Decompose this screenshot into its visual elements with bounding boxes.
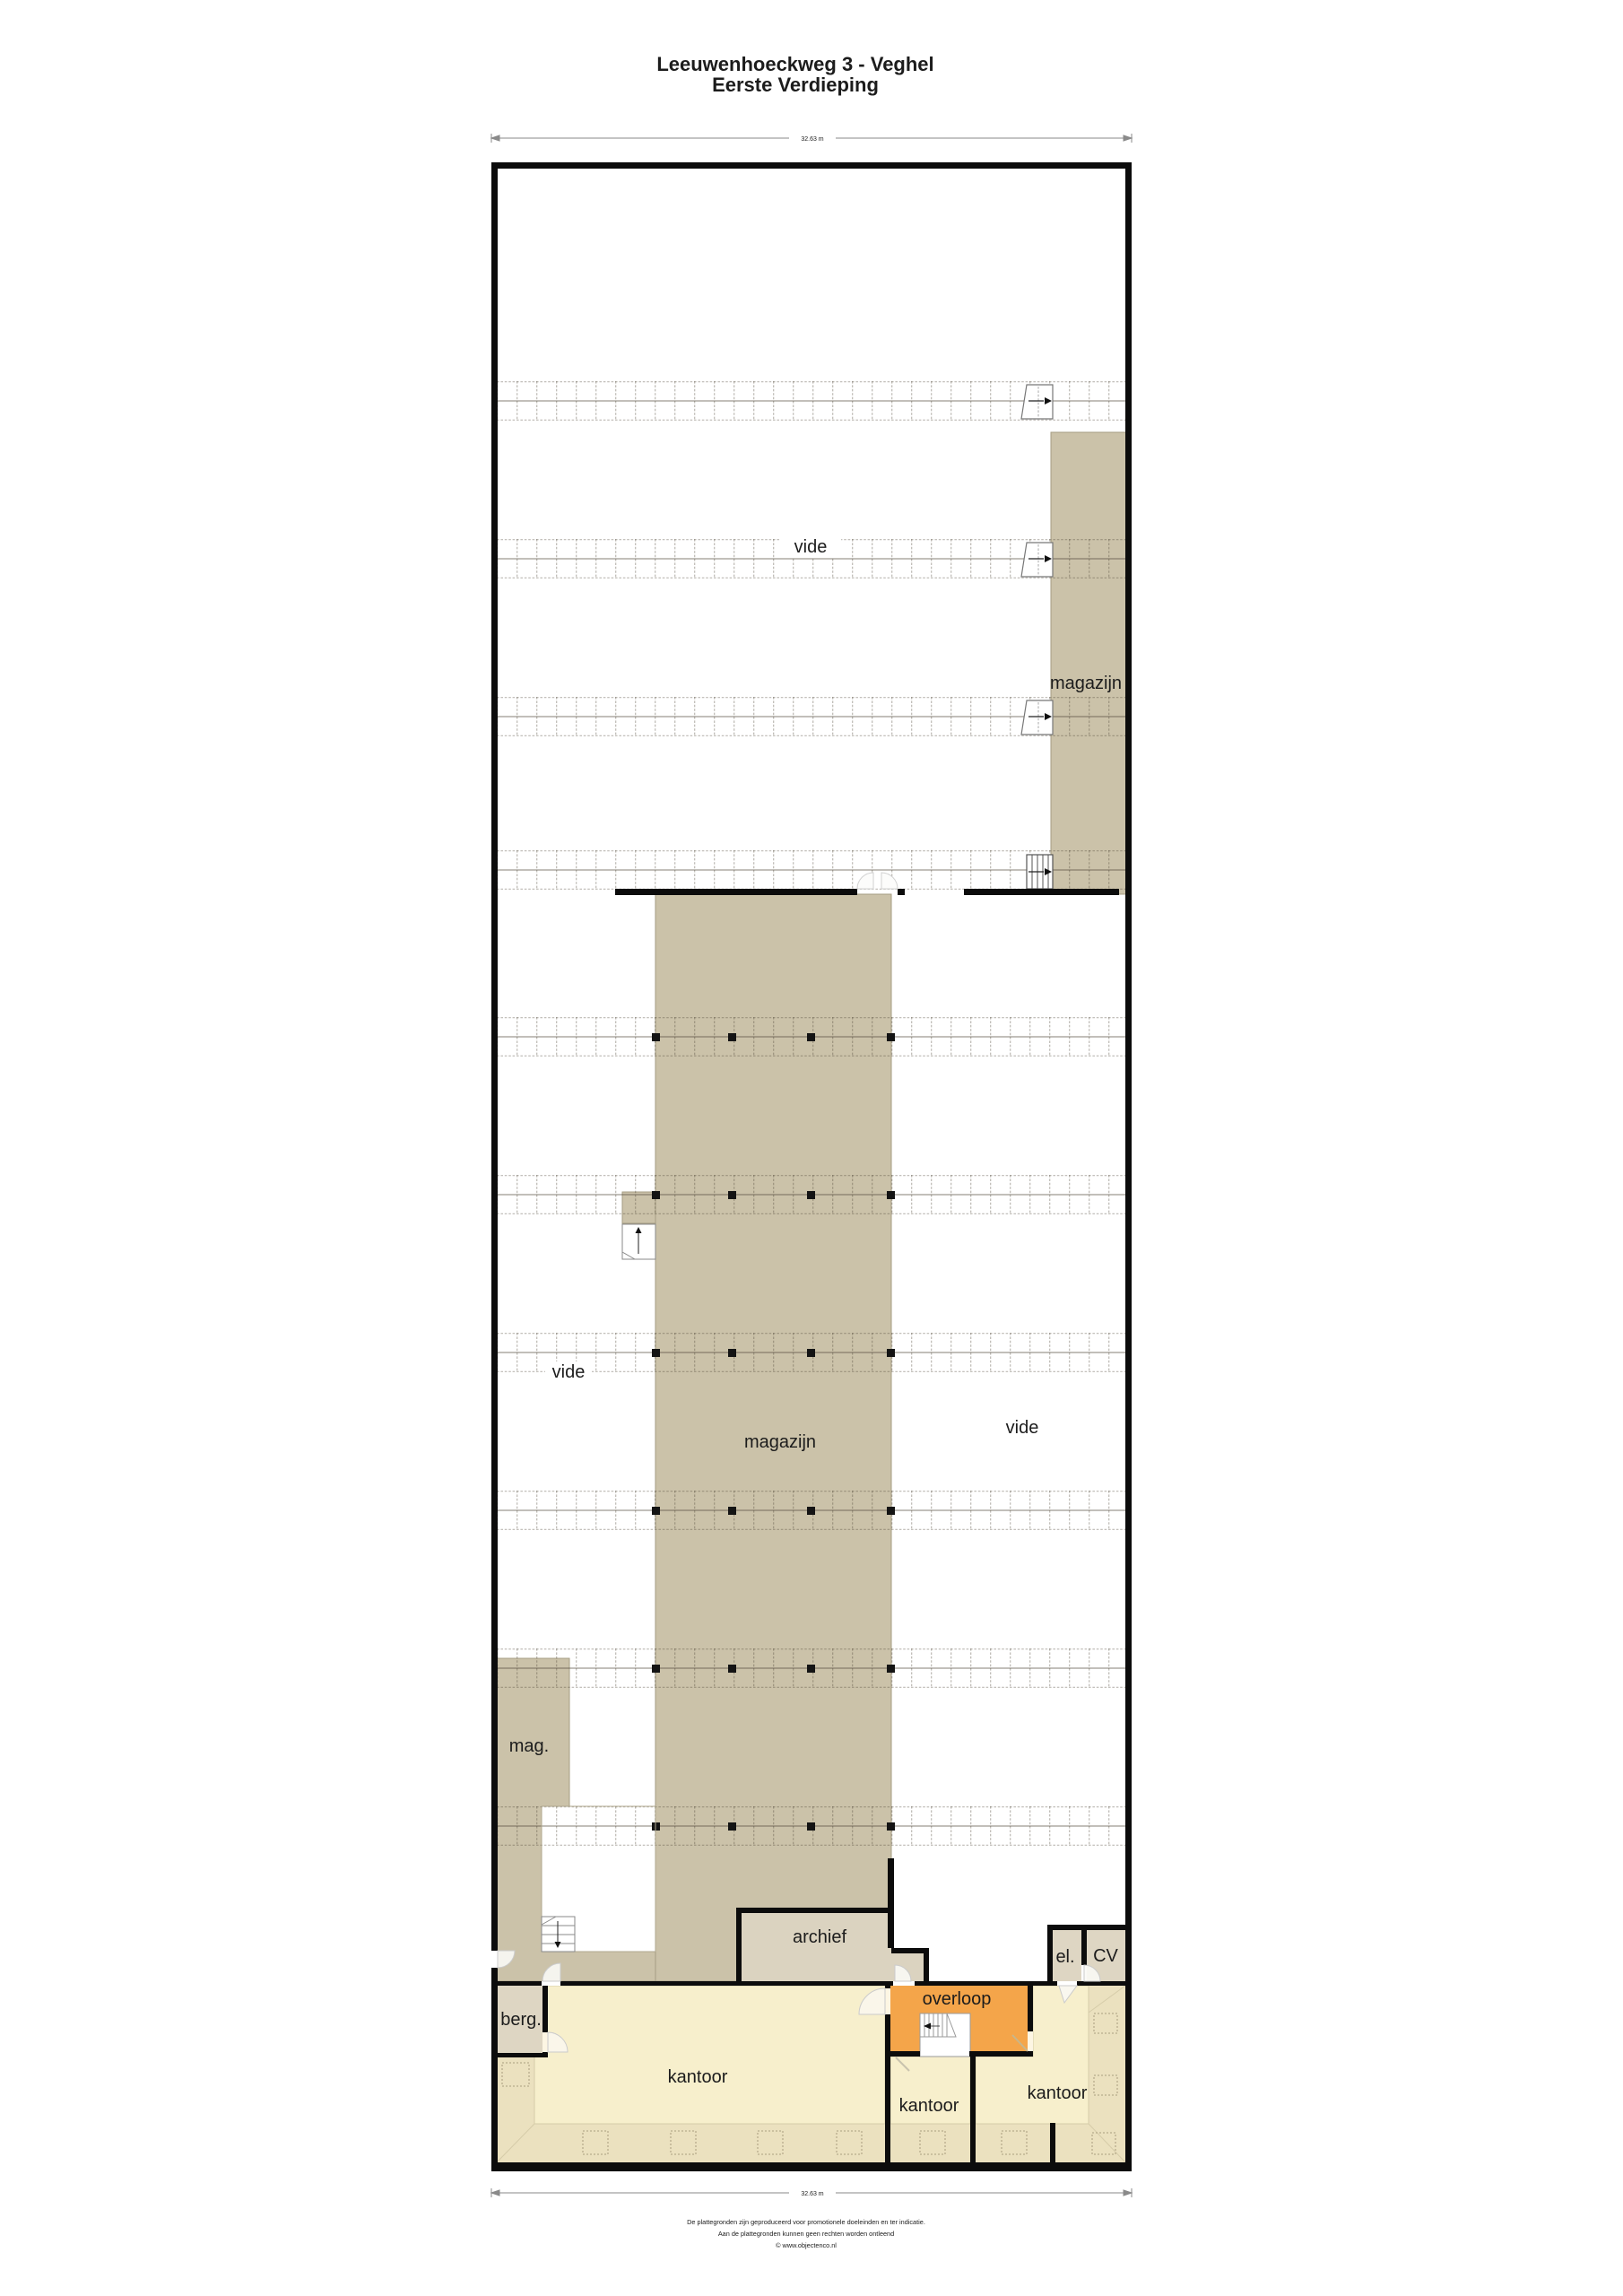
- svg-text:kantoor: kantoor: [1028, 2083, 1088, 2103]
- svg-text:Aan de plattegronden kunnen ge: Aan de plattegronden kunnen geen rechten…: [718, 2230, 894, 2238]
- svg-text:mag.: mag.: [509, 1736, 549, 1756]
- svg-text:vide: vide: [552, 1362, 586, 1382]
- svg-text:vide: vide: [794, 537, 828, 557]
- svg-text:De plattegronden zijn geproduc: De plattegronden zijn geproduceerd voor …: [687, 2218, 925, 2226]
- svg-text:32.63 m: 32.63 m: [801, 136, 823, 143]
- svg-text:el.: el.: [1055, 1947, 1074, 1967]
- svg-text:kantoor: kantoor: [899, 2096, 959, 2116]
- svg-text:© www.objectenco.nl: © www.objectenco.nl: [776, 2241, 837, 2249]
- svg-text:Eerste Verdieping: Eerste Verdieping: [712, 74, 879, 96]
- svg-text:berg.: berg.: [500, 2010, 542, 2030]
- svg-text:Leeuwenhoeckweg 3 - Veghel: Leeuwenhoeckweg 3 - Veghel: [656, 53, 933, 75]
- svg-text:archief: archief: [793, 1927, 846, 1947]
- svg-text:vide: vide: [1006, 1418, 1039, 1438]
- svg-text:magazijn: magazijn: [1050, 674, 1122, 693]
- svg-text:kantoor: kantoor: [668, 2067, 728, 2087]
- svg-text:magazijn: magazijn: [744, 1432, 816, 1452]
- svg-text:CV: CV: [1093, 1946, 1118, 1966]
- svg-text:overloop: overloop: [923, 1989, 992, 2009]
- svg-text:32.63 m: 32.63 m: [801, 2191, 823, 2197]
